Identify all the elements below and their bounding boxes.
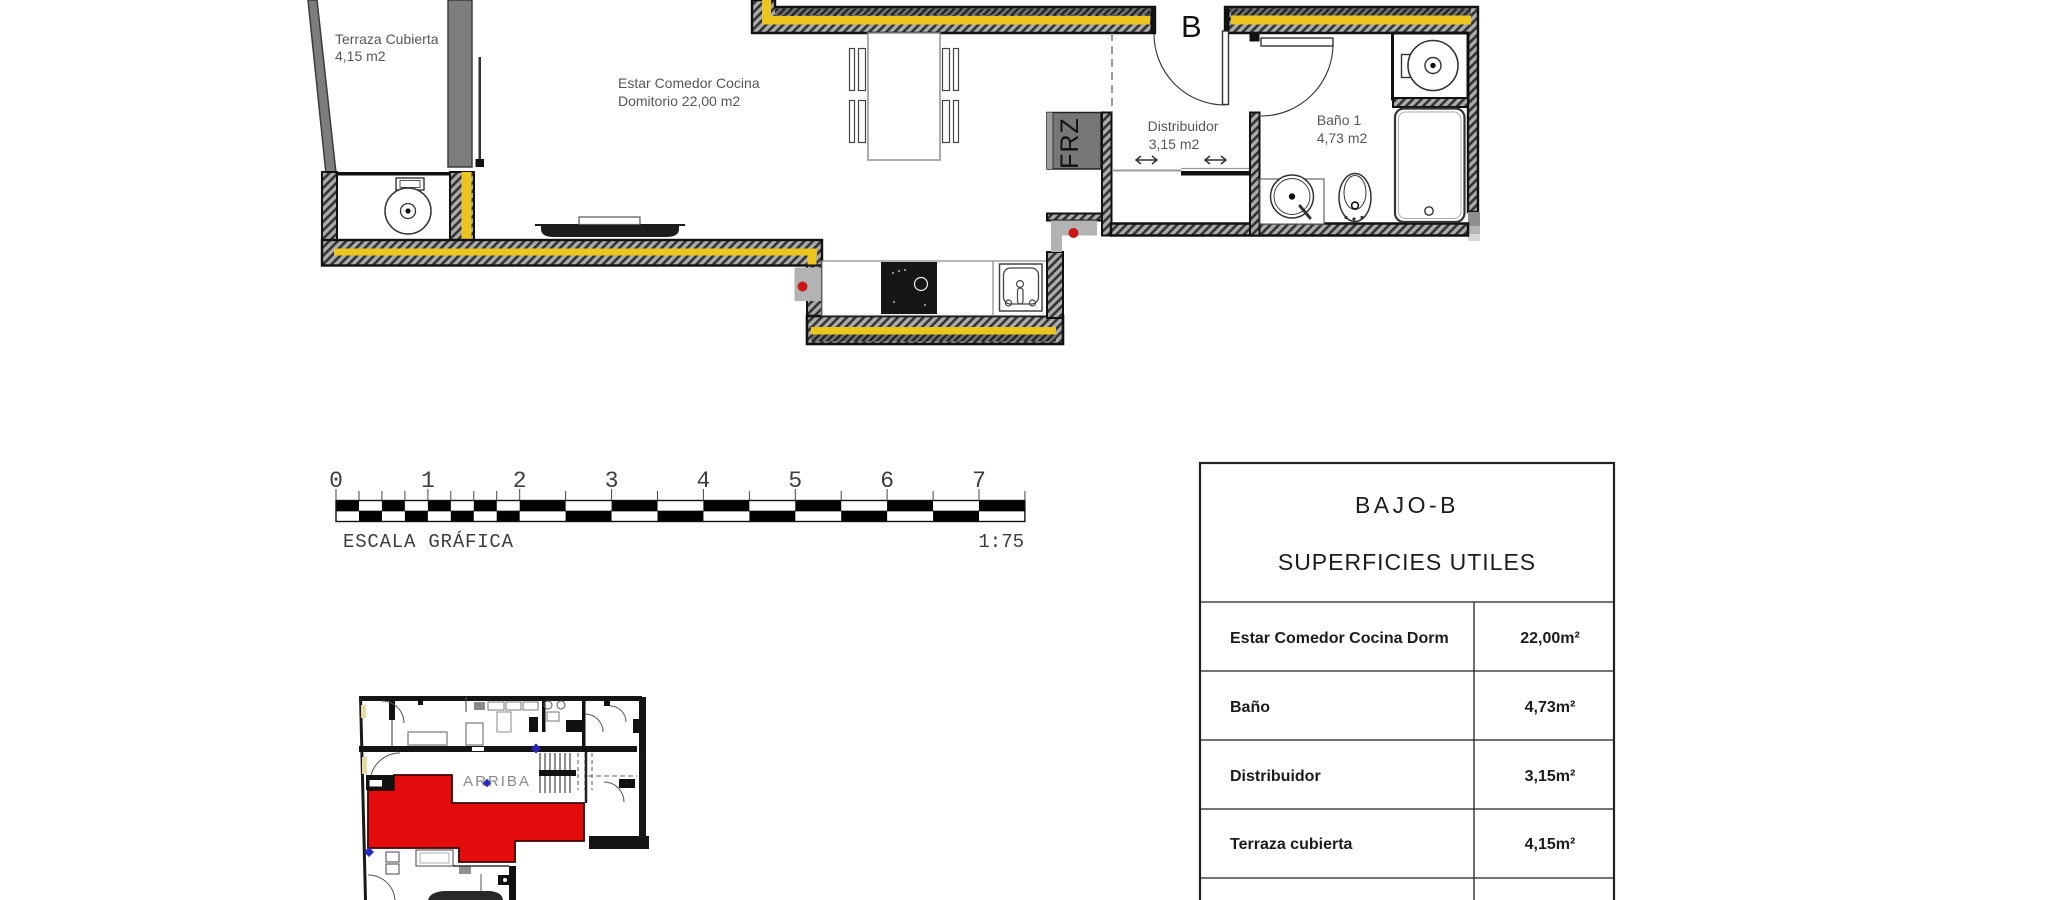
svg-text:4,73m²: 4,73m² — [1525, 699, 1576, 716]
svg-text:ESCALA GRÁFICA: ESCALA GRÁFICA — [343, 531, 514, 553]
svg-text:22,00m²: 22,00m² — [1520, 630, 1580, 647]
svg-text:4,73 m2: 4,73 m2 — [1317, 130, 1368, 146]
svg-text:6: 6 — [880, 468, 894, 494]
svg-text:Terraza Cubierta: Terraza Cubierta — [335, 31, 439, 47]
svg-text:4: 4 — [696, 468, 710, 494]
svg-text:Estar Comedor Cocina Dorm: Estar Comedor Cocina Dorm — [1230, 630, 1449, 647]
svg-text:7: 7 — [972, 468, 986, 494]
svg-text:1: 1 — [421, 468, 435, 494]
svg-text:1:75: 1:75 — [978, 531, 1024, 553]
svg-text:FRZ: FRZ — [1056, 117, 1084, 169]
svg-text:B: B — [1181, 9, 1202, 44]
svg-text:BAJO-B: BAJO-B — [1355, 492, 1459, 518]
svg-text:ARRIBA: ARRIBA — [463, 773, 531, 790]
svg-text:Estar Comedor Cocina: Estar Comedor Cocina — [618, 75, 760, 91]
svg-text:Baño: Baño — [1230, 699, 1270, 716]
svg-text:2: 2 — [513, 468, 527, 494]
svg-text:3,15m²: 3,15m² — [1525, 768, 1576, 785]
svg-text:Baño 1: Baño 1 — [1317, 112, 1362, 128]
svg-text:Terraza cubierta: Terraza cubierta — [1230, 836, 1353, 853]
svg-text:Domitorio 22,00 m2: Domitorio 22,00 m2 — [618, 93, 740, 109]
svg-text:3,15 m2: 3,15 m2 — [1149, 136, 1200, 152]
svg-text:5: 5 — [788, 468, 802, 494]
svg-text:Distribuidor: Distribuidor — [1230, 768, 1321, 785]
svg-text:SUPERFICIES UTILES: SUPERFICIES UTILES — [1278, 549, 1536, 575]
svg-text:4,15 m2: 4,15 m2 — [335, 48, 386, 64]
svg-text:3: 3 — [605, 468, 619, 494]
svg-text:Distribuidor: Distribuidor — [1148, 118, 1219, 134]
svg-text:4,15m²: 4,15m² — [1525, 836, 1576, 853]
svg-text:0: 0 — [329, 468, 343, 494]
